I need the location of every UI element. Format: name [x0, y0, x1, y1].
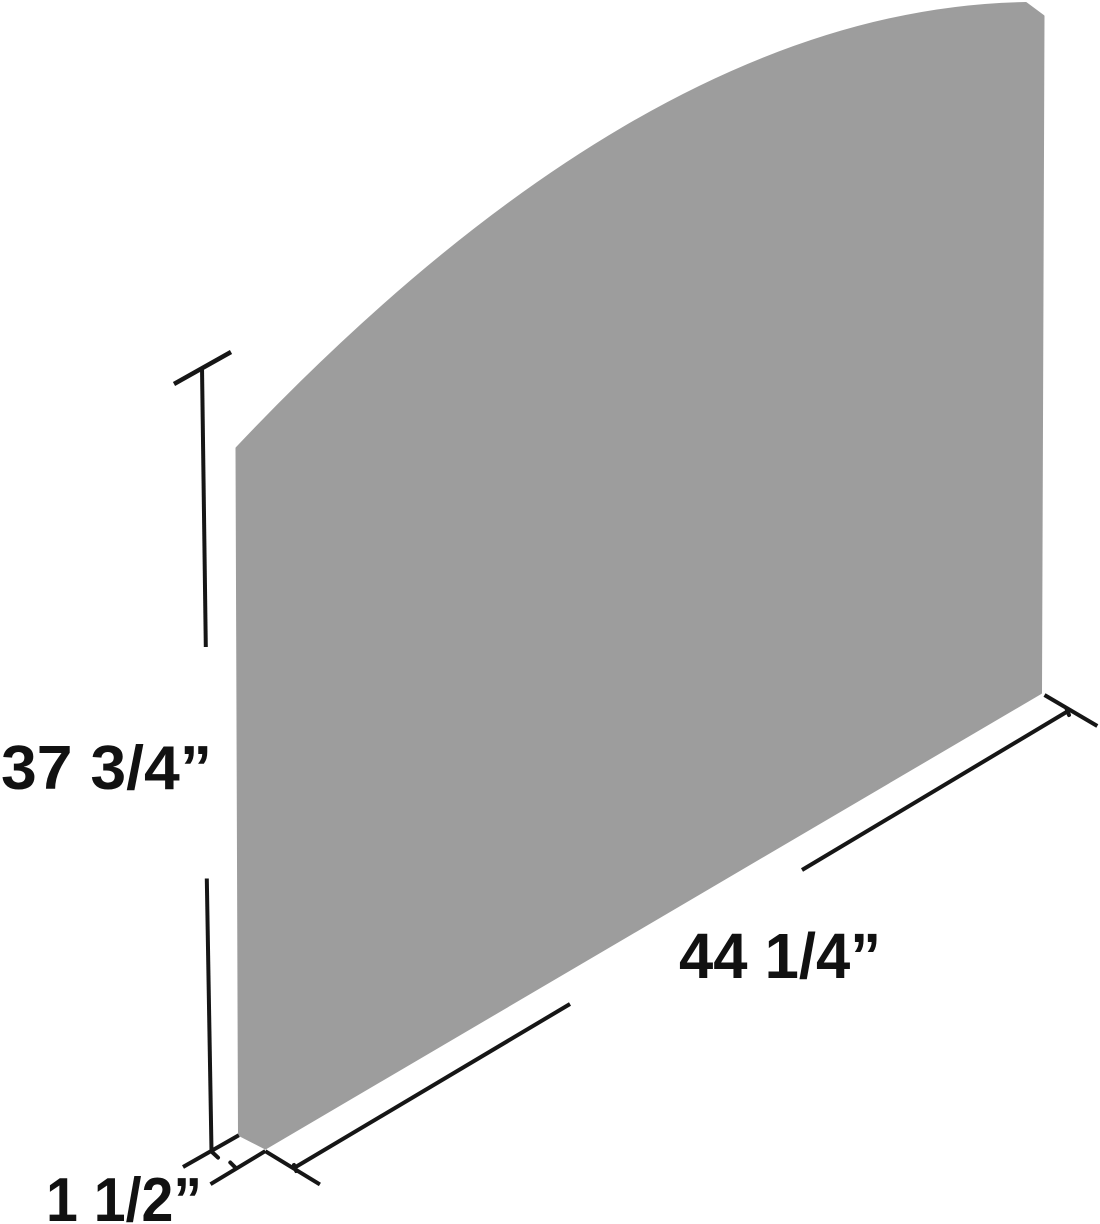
svg-text:1 1/2”: 1 1/2”: [46, 1166, 202, 1224]
svg-text:44 1/4”: 44 1/4”: [679, 920, 881, 992]
svg-text:37 3/4”: 37 3/4”: [1, 734, 212, 803]
